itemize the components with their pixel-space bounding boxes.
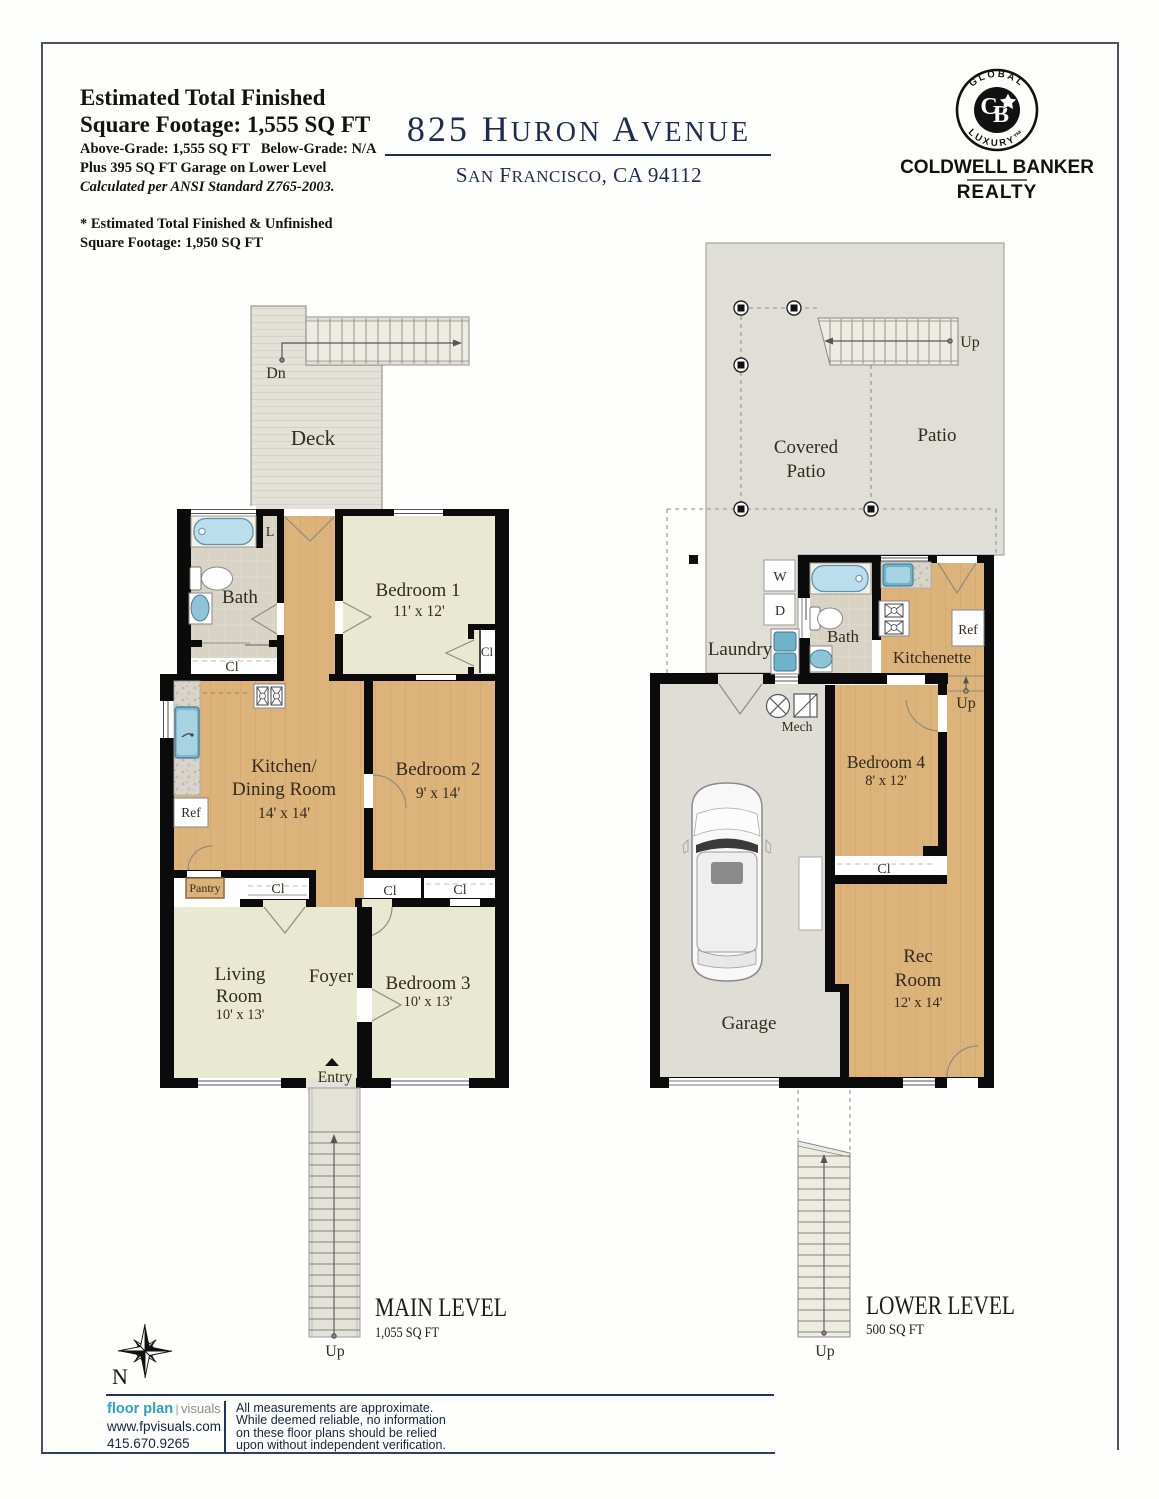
svg-text:Room: Room <box>895 970 942 991</box>
svg-text:Bedroom 3: Bedroom 3 <box>386 973 471 994</box>
svg-text:Bedroom 4: Bedroom 4 <box>847 752 926 772</box>
svg-text:Deck: Deck <box>291 426 336 450</box>
svg-text:Dn: Dn <box>266 365 286 382</box>
svg-text:Garage: Garage <box>722 1013 777 1034</box>
svg-text:1,055 SQ FT: 1,055 SQ FT <box>375 1325 439 1341</box>
svg-text:W: W <box>773 570 787 585</box>
svg-text:12' x 14': 12' x 14' <box>894 995 943 1011</box>
svg-text:Ref: Ref <box>181 805 201 820</box>
svg-text:Bedroom 2: Bedroom 2 <box>396 759 481 780</box>
svg-text:Cl: Cl <box>271 882 284 897</box>
svg-text:Cl: Cl <box>877 862 890 877</box>
svg-text:N: N <box>112 1364 128 1389</box>
svg-text:Dining Room: Dining Room <box>232 779 336 800</box>
svg-text:LOWER LEVEL: LOWER LEVEL <box>866 1291 1015 1320</box>
svg-text:Rec: Rec <box>903 946 933 967</box>
svg-text:Foyer: Foyer <box>309 966 354 987</box>
svg-text:Kitchen/: Kitchen/ <box>251 756 317 777</box>
svg-text:Entry: Entry <box>318 1069 353 1086</box>
svg-text:Cl: Cl <box>383 884 396 899</box>
svg-text:500 SQ FT: 500 SQ FT <box>866 1322 924 1338</box>
svg-text:11' x 12': 11' x 12' <box>393 603 445 620</box>
svg-text:Up: Up <box>325 1343 345 1360</box>
svg-text:Cl: Cl <box>481 644 494 659</box>
svg-text:Kitchenette: Kitchenette <box>893 648 971 667</box>
svg-text:Up: Up <box>960 334 980 351</box>
svg-text:Living: Living <box>215 964 266 985</box>
svg-text:14' x 14': 14' x 14' <box>258 805 310 822</box>
svg-text:Laundry: Laundry <box>708 639 773 660</box>
svg-text:Cl: Cl <box>453 883 466 898</box>
svg-text:Patio: Patio <box>917 425 956 446</box>
svg-text:10' x 13': 10' x 13' <box>216 1007 265 1023</box>
svg-text:Ref: Ref <box>958 622 978 637</box>
svg-text:8' x 12': 8' x 12' <box>865 773 906 789</box>
svg-text:Bath: Bath <box>222 587 258 608</box>
svg-text:L: L <box>266 525 275 540</box>
svg-text:9' x 14': 9' x 14' <box>416 785 461 802</box>
svg-text:Up: Up <box>815 1343 835 1360</box>
svg-text:Covered: Covered <box>774 437 839 458</box>
svg-text:Pantry: Pantry <box>189 881 220 895</box>
svg-text:Bedroom 1: Bedroom 1 <box>376 580 461 601</box>
svg-text:Cl: Cl <box>225 660 238 675</box>
svg-text:D: D <box>775 604 785 619</box>
svg-text:Room: Room <box>216 986 263 1007</box>
svg-text:Bath: Bath <box>827 627 860 646</box>
svg-text:Patio: Patio <box>786 461 825 482</box>
svg-text:Up: Up <box>956 695 976 712</box>
svg-text:MAIN LEVEL: MAIN LEVEL <box>375 1293 507 1322</box>
svg-text:10' x 13': 10' x 13' <box>404 994 453 1010</box>
svg-text:Mech: Mech <box>782 719 813 734</box>
